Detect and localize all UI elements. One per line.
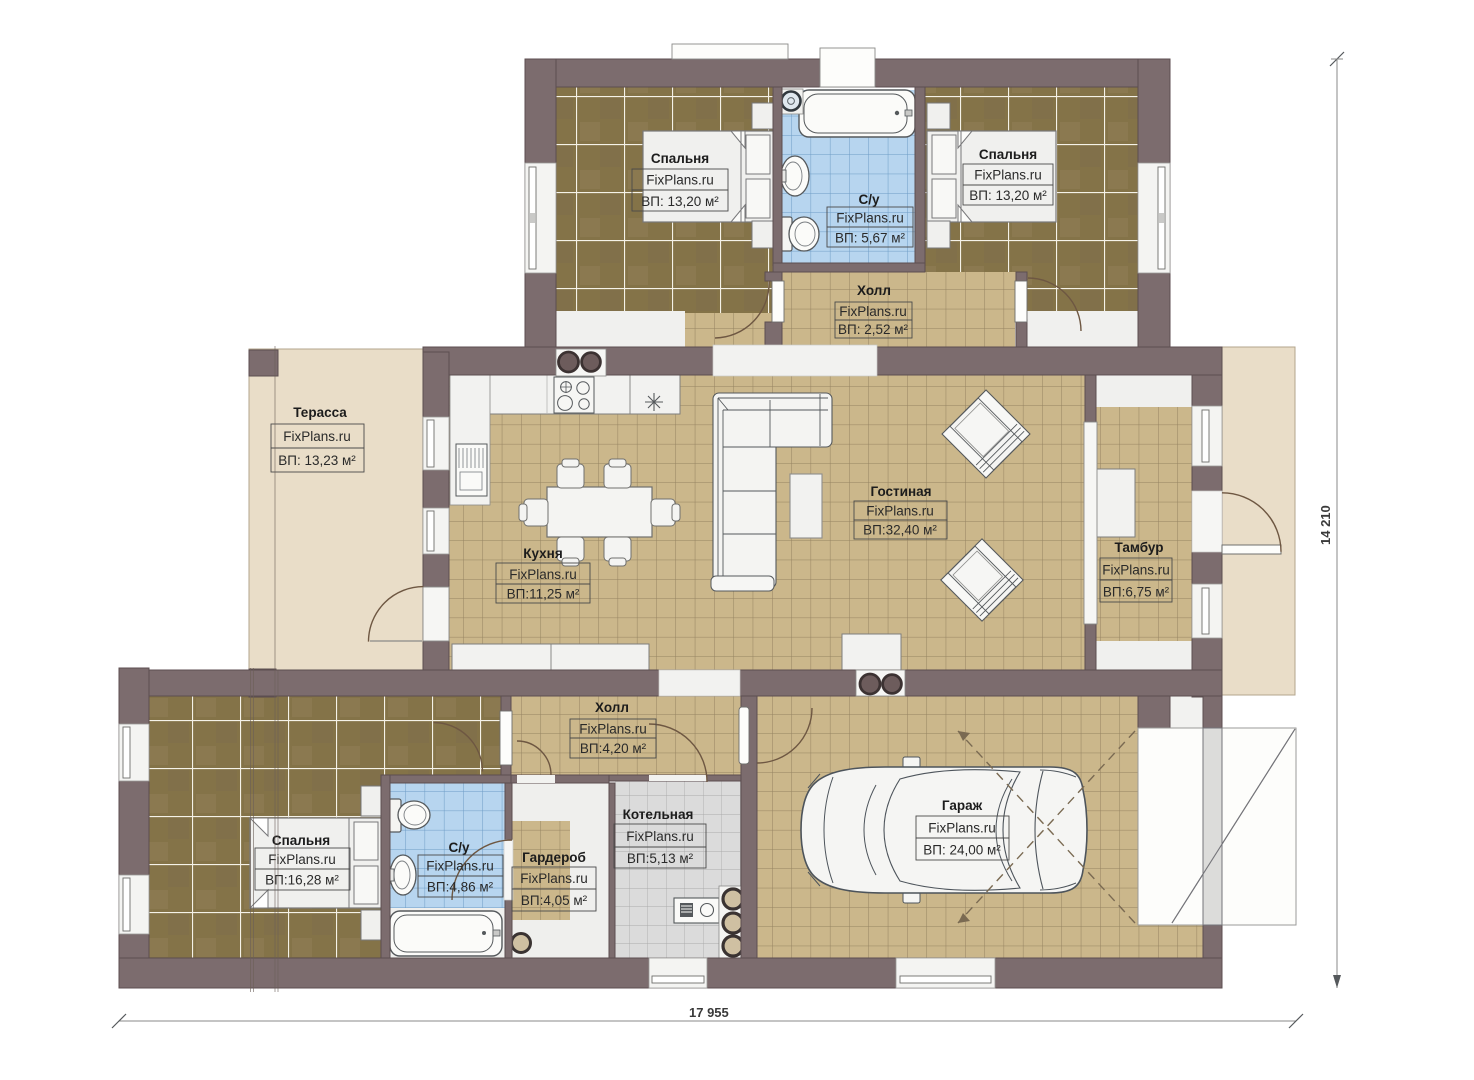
svg-text:FixPlans.ru: FixPlans.ru	[283, 429, 351, 444]
svg-text:С/у: С/у	[448, 840, 470, 855]
svg-text:Гостиная: Гостиная	[870, 484, 931, 499]
svg-text:ВП:5,13 м²: ВП:5,13 м²	[627, 851, 694, 866]
svg-text:Котельная: Котельная	[623, 807, 694, 822]
svg-text:FixPlans.ru: FixPlans.ru	[1102, 563, 1170, 578]
svg-text:Тамбур: Тамбур	[1115, 540, 1164, 555]
svg-text:FixPlans.ru: FixPlans.ru	[866, 504, 934, 519]
svg-text:Спальня: Спальня	[272, 833, 330, 848]
svg-text:FixPlans.ru: FixPlans.ru	[520, 871, 588, 886]
svg-text:ВП:16,28 м²: ВП:16,28 м²	[265, 873, 339, 888]
svg-text:Терасса: Терасса	[293, 405, 347, 420]
svg-text:ВП: 5,67 м²: ВП: 5,67 м²	[835, 231, 906, 246]
svg-text:FixPlans.ru: FixPlans.ru	[579, 722, 647, 737]
svg-text:ВП: 24,00 м²: ВП: 24,00 м²	[923, 843, 1001, 858]
svg-text:ВП:4,86 м²: ВП:4,86 м²	[427, 880, 494, 895]
svg-text:FixPlans.ru: FixPlans.ru	[836, 211, 904, 226]
svg-text:14 210: 14 210	[1318, 505, 1333, 545]
svg-text:ВП:32,40 м²: ВП:32,40 м²	[863, 523, 937, 538]
svg-text:ВП:11,25 м²: ВП:11,25 м²	[507, 587, 580, 602]
svg-text:FixPlans.ru: FixPlans.ru	[626, 829, 694, 844]
svg-text:FixPlans.ru: FixPlans.ru	[974, 168, 1042, 183]
svg-text:Спальня: Спальня	[651, 151, 709, 166]
svg-text:ВП:6,75 м²: ВП:6,75 м²	[1103, 585, 1170, 600]
svg-text:FixPlans.ru: FixPlans.ru	[839, 304, 907, 319]
svg-text:Холл: Холл	[595, 700, 629, 715]
svg-text:Гараж: Гараж	[942, 798, 983, 813]
svg-text:FixPlans.ru: FixPlans.ru	[928, 821, 996, 836]
svg-text:FixPlans.ru: FixPlans.ru	[426, 859, 494, 874]
svg-text:FixPlans.ru: FixPlans.ru	[646, 173, 714, 188]
svg-text:17 955: 17 955	[689, 1005, 729, 1020]
svg-text:ВП:4,05 м²: ВП:4,05 м²	[521, 893, 588, 908]
svg-text:Холл: Холл	[857, 283, 891, 298]
svg-text:С/у: С/у	[858, 192, 880, 207]
svg-text:ВП: 13,20 м²: ВП: 13,20 м²	[969, 188, 1047, 203]
svg-text:Кухня: Кухня	[523, 546, 562, 561]
svg-text:ВП: 13,23 м²: ВП: 13,23 м²	[278, 453, 356, 468]
svg-text:ВП:4,20 м²: ВП:4,20 м²	[580, 741, 647, 756]
svg-text:Спальня: Спальня	[979, 147, 1037, 162]
svg-text:FixPlans.ru: FixPlans.ru	[509, 567, 577, 582]
svg-text:ВП: 2,52 м²: ВП: 2,52 м²	[838, 322, 909, 337]
svg-text:Гардероб: Гардероб	[522, 850, 586, 865]
svg-text:ВП: 13,20 м²: ВП: 13,20 м²	[641, 194, 719, 209]
